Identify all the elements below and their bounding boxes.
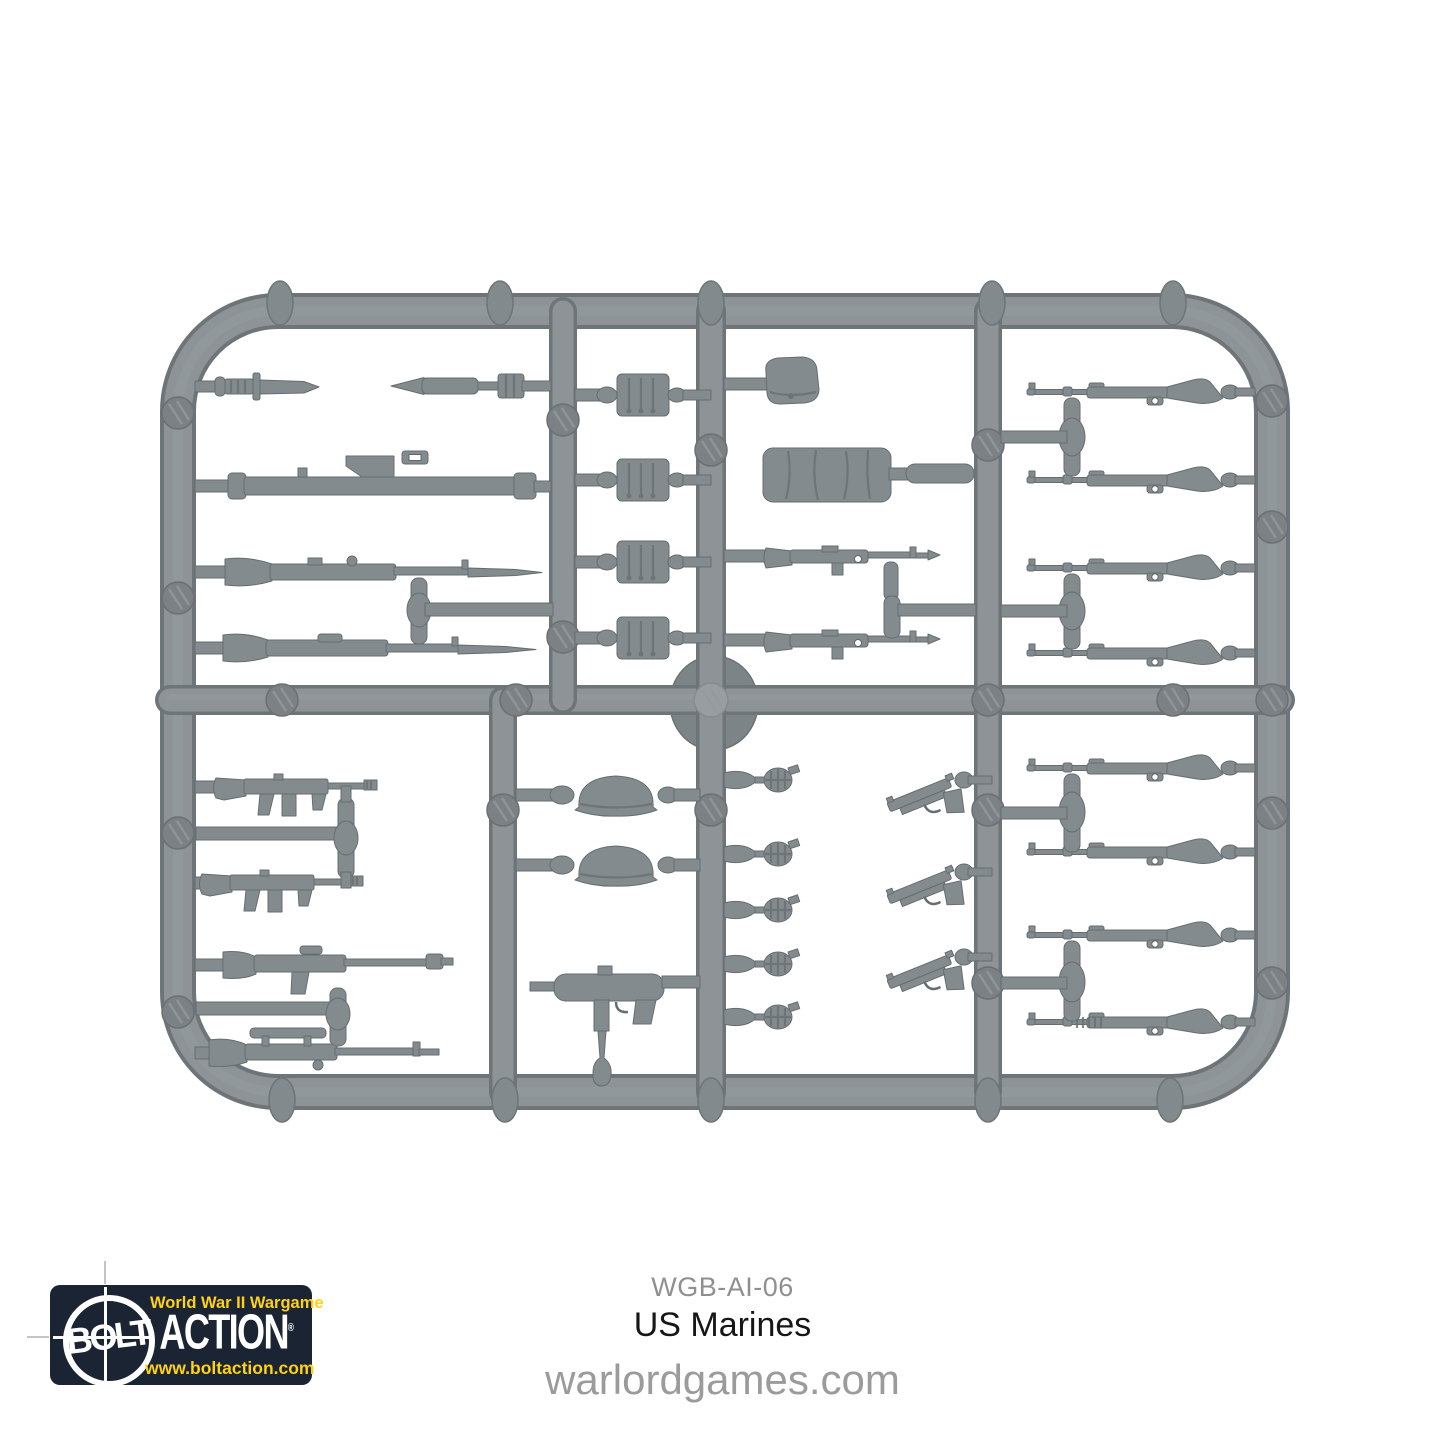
m1-garand-rifles-bottom	[1001, 755, 1255, 1035]
sprue-runner	[884, 596, 976, 638]
rifle-with-bayonet	[195, 556, 542, 586]
thompson-smg	[195, 870, 363, 912]
sprue-photo	[0, 0, 1445, 1445]
logo-word-action: ACTION®	[159, 1308, 290, 1357]
m1-helmet	[516, 846, 700, 886]
bazooka-rocket	[391, 374, 551, 398]
crosshair-line-top	[104, 1261, 106, 1284]
ammo-bandoliers	[575, 374, 711, 659]
rifle-with-bayonet	[195, 634, 536, 662]
sprue-runner	[196, 786, 358, 888]
crosshair-line-left	[27, 1336, 49, 1338]
bazooka	[195, 451, 551, 499]
sprue-runner	[407, 578, 553, 644]
bar-rifle	[195, 946, 453, 994]
m1-garand-rifles-top	[1001, 379, 1255, 666]
logo-word-action-text: ACTION	[159, 1305, 287, 1360]
m1-helmet	[516, 776, 700, 816]
bolt-action-logo: BOLT World War II Wargame ACTION® www.bo…	[50, 1285, 312, 1385]
bayonet	[195, 373, 319, 400]
m1-carbine	[724, 630, 940, 659]
utility-cap	[724, 357, 819, 404]
registered-mark: ®	[288, 1322, 294, 1334]
grenades	[724, 765, 800, 1029]
product-photo-page: WGB-AI-06 US Marines warlordgames.com BO…	[0, 0, 1445, 1445]
m1-carbine	[724, 546, 940, 600]
scoped-rifle	[195, 1028, 439, 1070]
logo-url: www.boltaction.com	[145, 1358, 305, 1379]
bedroll	[763, 448, 974, 502]
m3-grease-gun	[530, 966, 700, 1086]
